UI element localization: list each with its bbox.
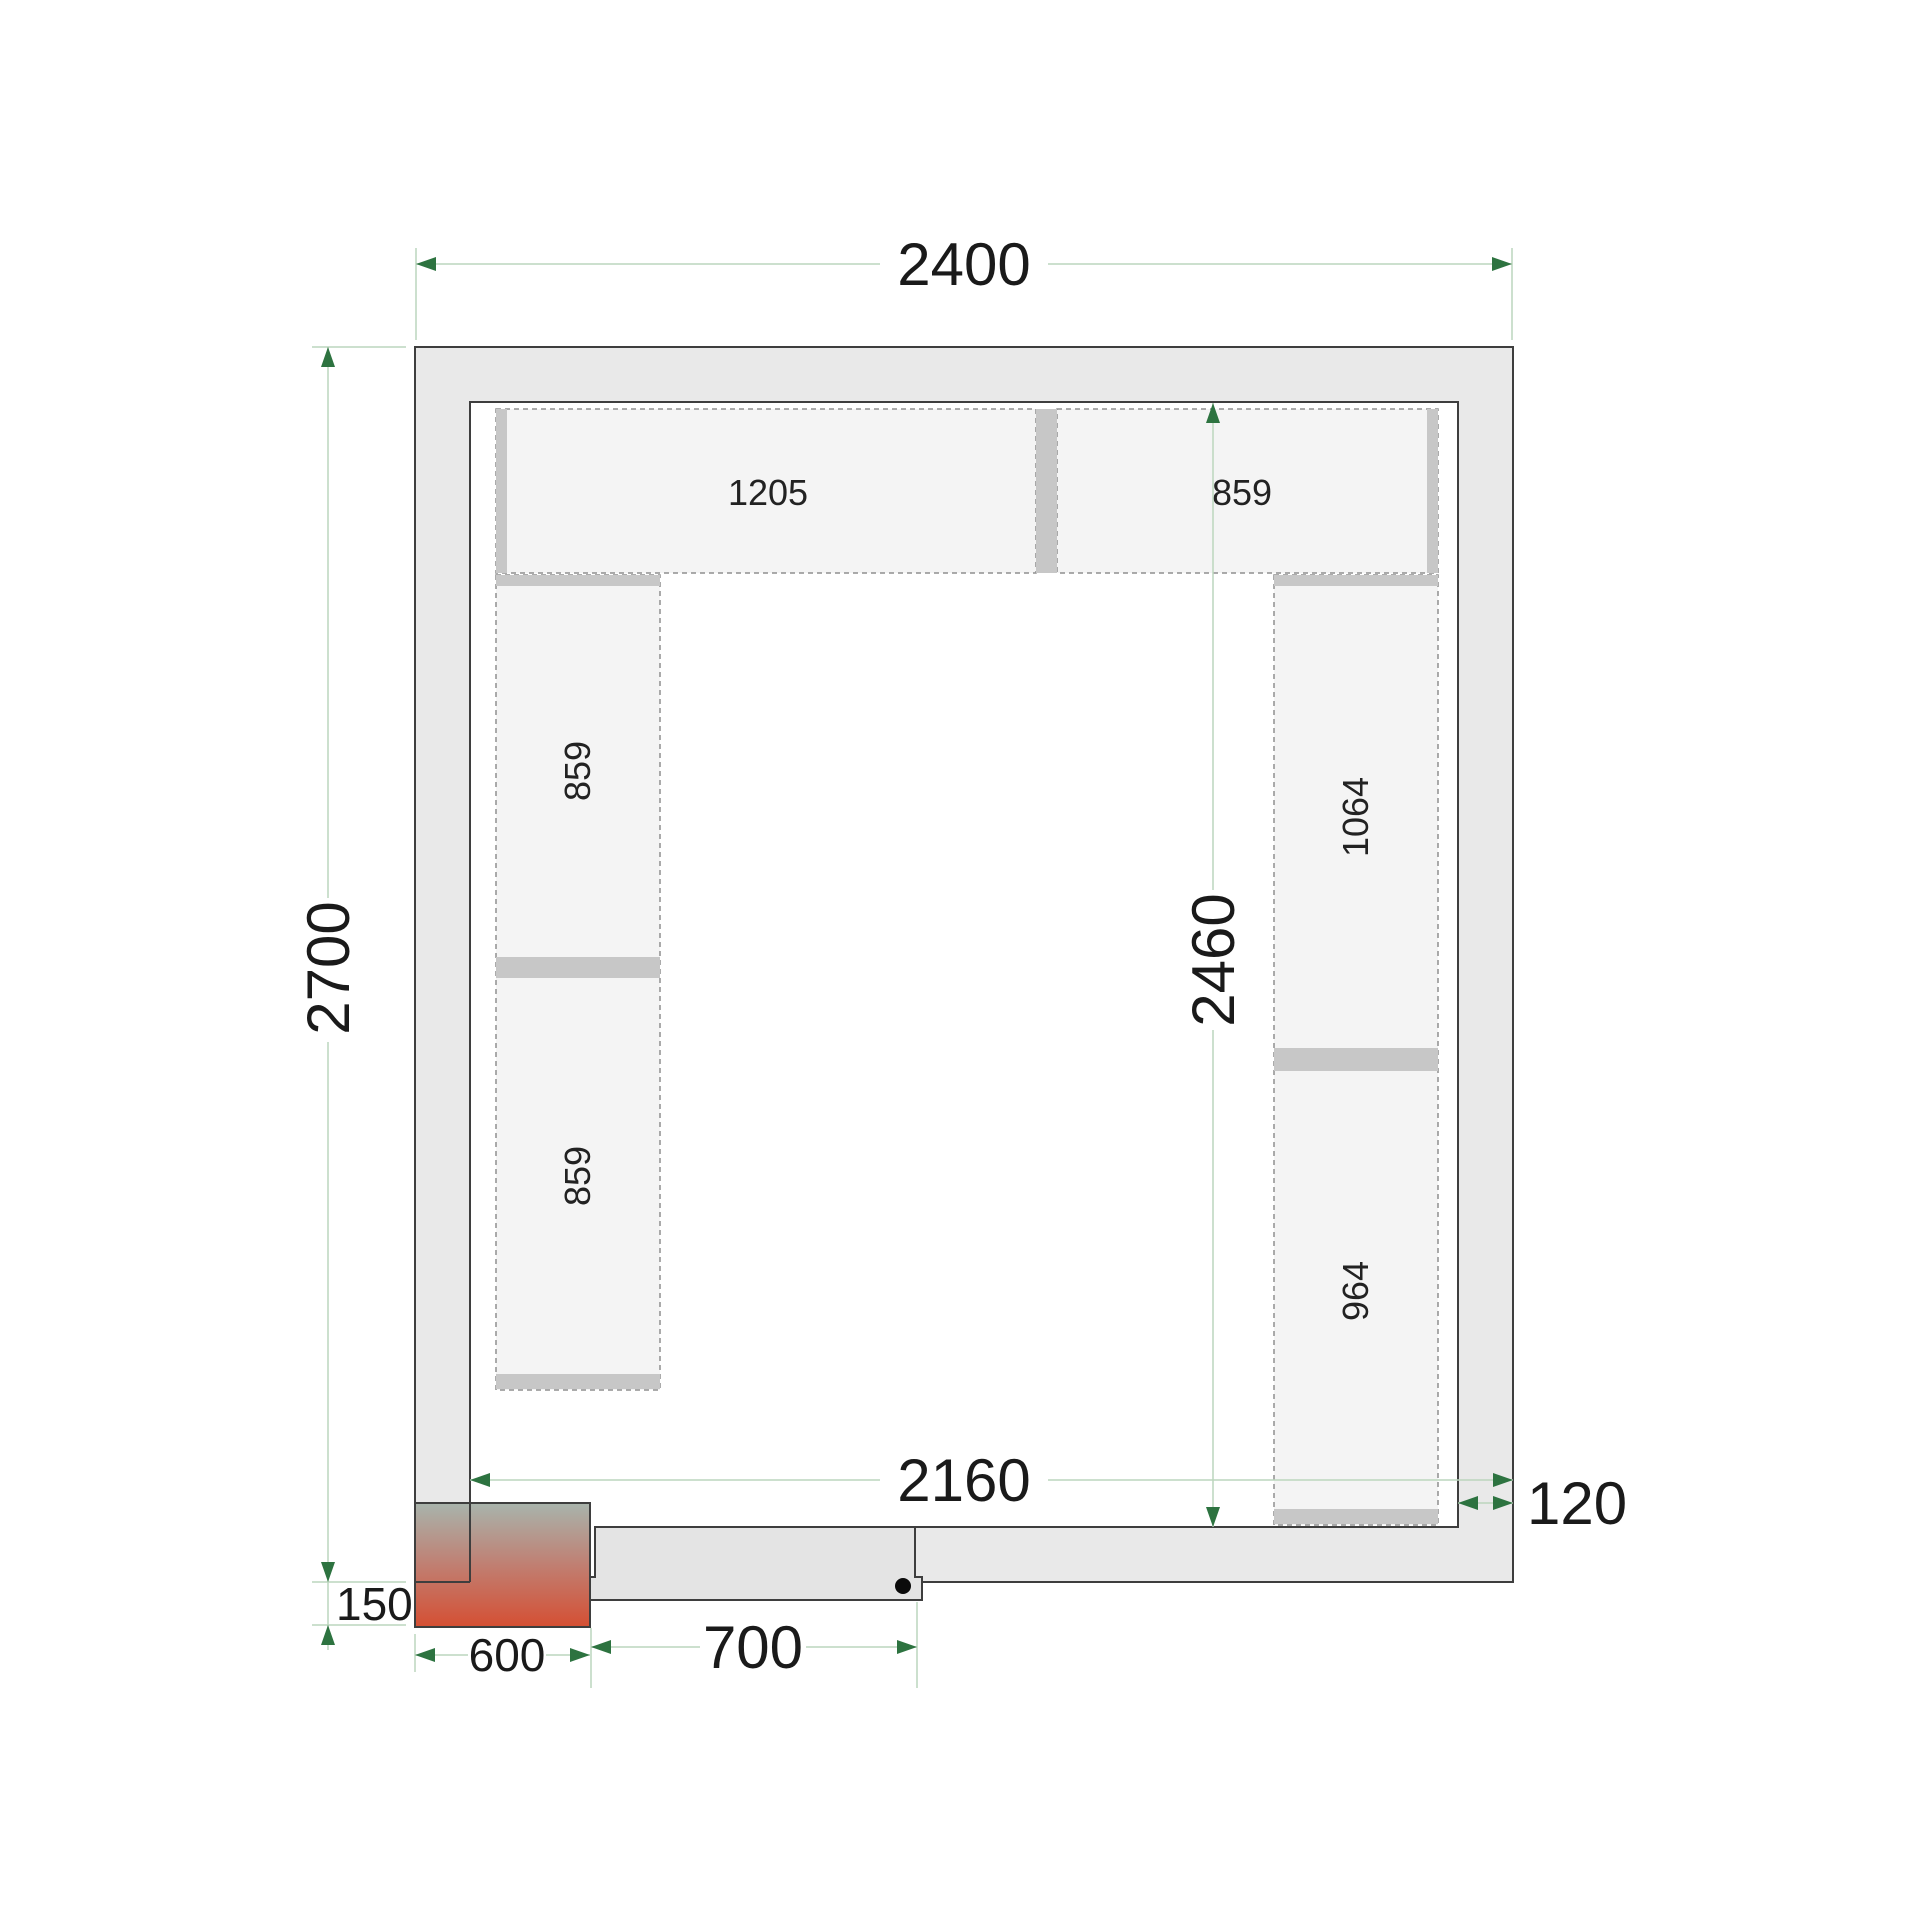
shelf-label-top-2: 859 — [1212, 472, 1272, 513]
shelf-top-divider — [1036, 409, 1057, 573]
dim-corner-unit-offset-label: 150 — [336, 1578, 413, 1630]
dim-door-opening: 700 — [591, 1602, 917, 1688]
shelf-left-bottom-cap — [496, 1374, 660, 1389]
cold-room-plan-drawing: 1205 859 859 859 1064 964 2400 2700 — [0, 0, 1920, 1920]
dim-inner-width-arrow-left — [470, 1473, 490, 1487]
shelf-label-top-1: 1205 — [728, 472, 808, 513]
dim-outer-width-label: 2400 — [897, 231, 1030, 298]
shelf-top-left-cap — [496, 409, 507, 573]
cooling-unit-block — [415, 1503, 590, 1627]
dim-door-opening-arrow-right — [897, 1640, 917, 1654]
shelf-label-right-2: 964 — [1335, 1261, 1376, 1321]
shelf-label-left-1: 859 — [557, 741, 598, 801]
dim-corner-unit-offset: 150 — [312, 1578, 413, 1650]
shelf-top-right-cap — [1427, 409, 1438, 573]
dim-corner-unit-width-label: 600 — [469, 1629, 546, 1681]
shelf-right-top-cap — [1274, 575, 1438, 586]
dim-outer-depth-arrow-bottom — [321, 1562, 335, 1582]
dim-outer-width-arrow-right — [1492, 257, 1512, 271]
dim-inner-depth-label: 2460 — [1180, 893, 1247, 1026]
dim-corner-unit-width: 600 — [415, 1629, 590, 1681]
dim-door-opening-arrow-left — [591, 1640, 611, 1654]
shelf-left-column — [496, 575, 660, 1390]
dim-door-opening-label: 700 — [703, 1614, 803, 1681]
door-leaf — [590, 1527, 922, 1600]
dim-corner-unit-width-arrow-right — [570, 1648, 590, 1662]
dim-inner-depth-arrow-bottom — [1206, 1507, 1220, 1527]
dim-inner-width-label: 2160 — [897, 1447, 1030, 1514]
door — [590, 1527, 922, 1600]
dim-corner-unit-width-arrow-left — [415, 1648, 435, 1662]
door-handle-dot — [895, 1578, 911, 1594]
shelf-label-left-2: 859 — [557, 1146, 598, 1206]
dim-outer-depth-label: 2700 — [295, 901, 362, 1034]
dim-corner-unit-offset-arrow-bottom — [321, 1625, 335, 1645]
shelf-right-bottom-cap — [1274, 1509, 1438, 1524]
dim-wall-thickness-label: 120 — [1527, 1470, 1627, 1537]
shelving: 1205 859 859 859 1064 964 — [496, 409, 1438, 1525]
dim-outer-depth-arrow-top — [321, 347, 335, 367]
shelf-right-divider — [1274, 1048, 1438, 1071]
shelf-left-divider — [496, 957, 660, 978]
shelf-label-right-1: 1064 — [1335, 777, 1376, 857]
floor-plan-canvas: 1205 859 859 859 1064 964 2400 2700 — [0, 0, 1920, 1920]
dim-outer-width: 2400 — [416, 231, 1512, 340]
dim-outer-width-arrow-left — [416, 257, 436, 271]
shelf-left-top-cap — [496, 575, 660, 586]
dim-outer-depth: 2700 — [295, 347, 406, 1582]
cooling-unit — [415, 1503, 590, 1627]
